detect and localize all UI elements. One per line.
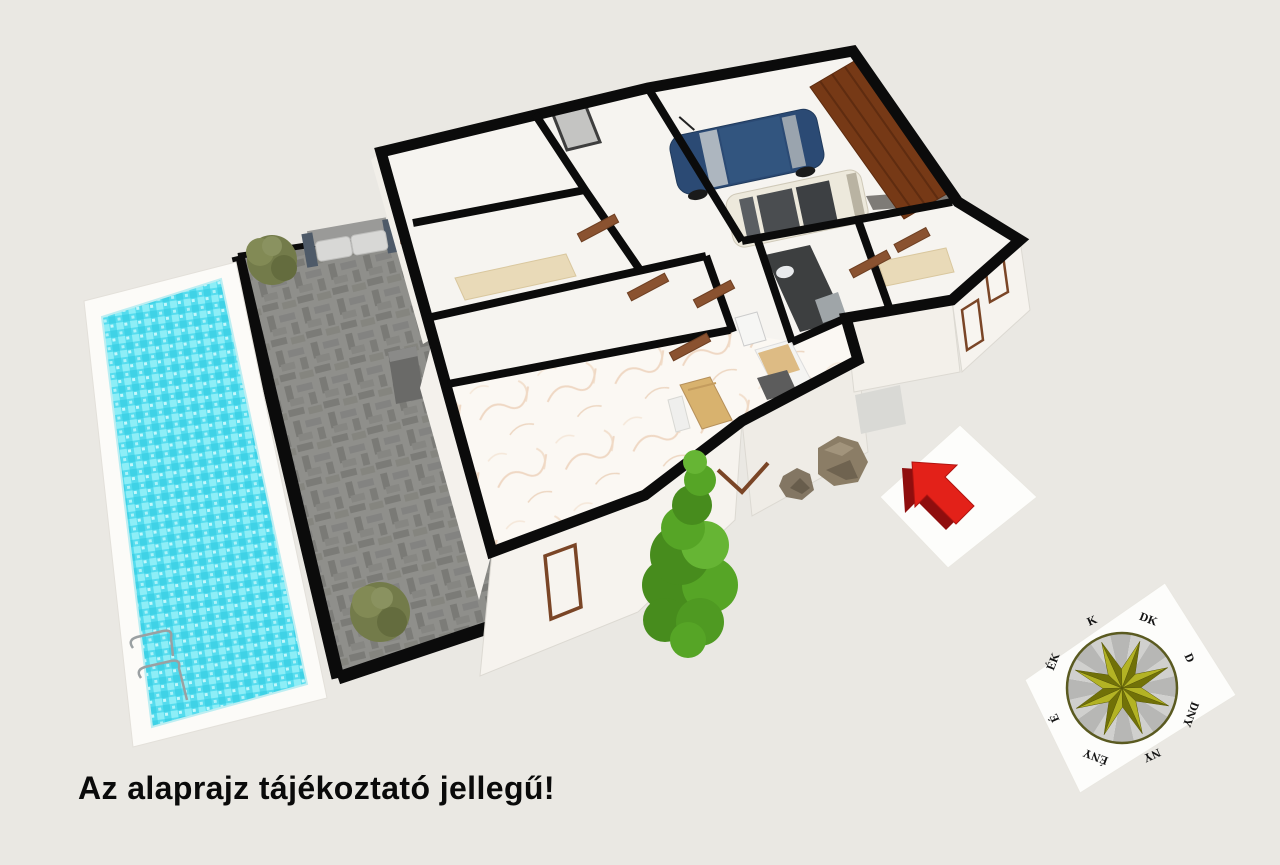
compass-label-K: K (1085, 612, 1100, 629)
concrete-pad (855, 385, 906, 434)
compass-card: KDKDDNYNYÉNYÉÉK (1025, 583, 1236, 793)
north-arrow-card (880, 425, 1037, 568)
caption-text: Az alaprajz tájékoztató jellegű! (78, 770, 555, 807)
shrub-bottom (350, 582, 410, 642)
window-east-2 (962, 300, 983, 350)
scene-svg: KDKDDNYNYÉNYÉÉK (0, 0, 1280, 865)
floorplan-scene: KDKDDNYNYÉNYÉÉK Az alaprajz tájékoztató … (0, 0, 1280, 865)
window-south (545, 545, 581, 619)
